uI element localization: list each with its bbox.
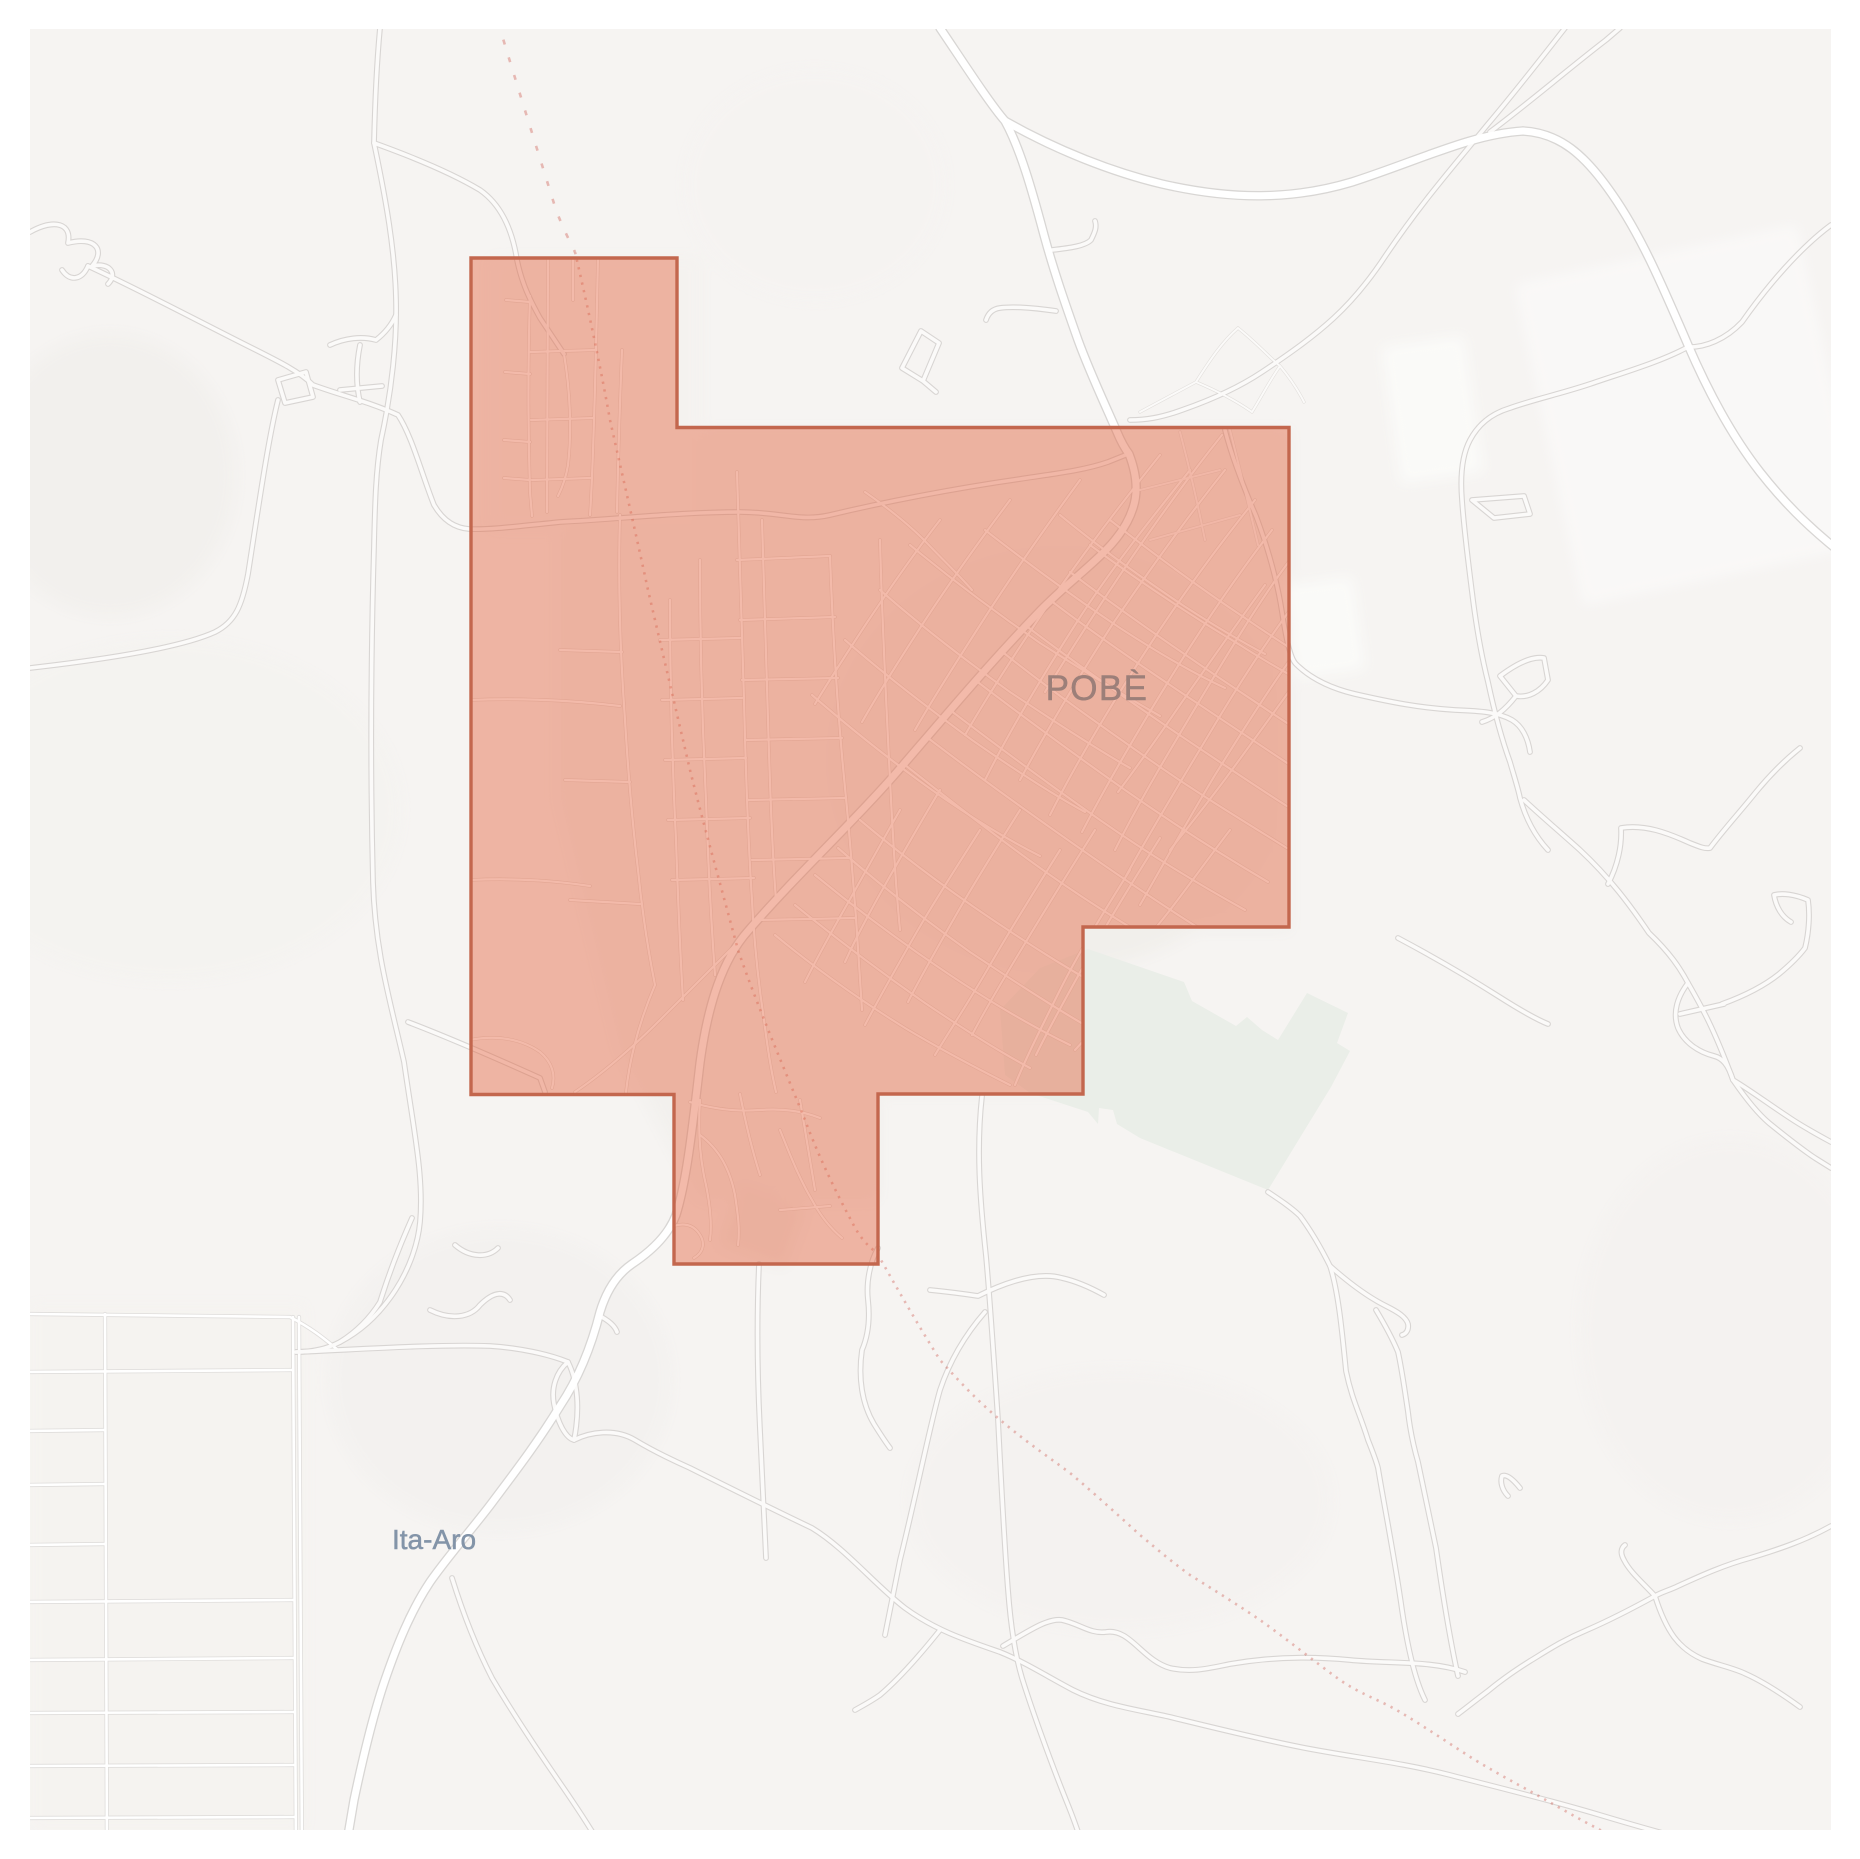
- svg-text:Ita-Aro: Ita-Aro: [392, 1524, 476, 1555]
- svg-text:POBÈ: POBÈ: [1046, 669, 1149, 708]
